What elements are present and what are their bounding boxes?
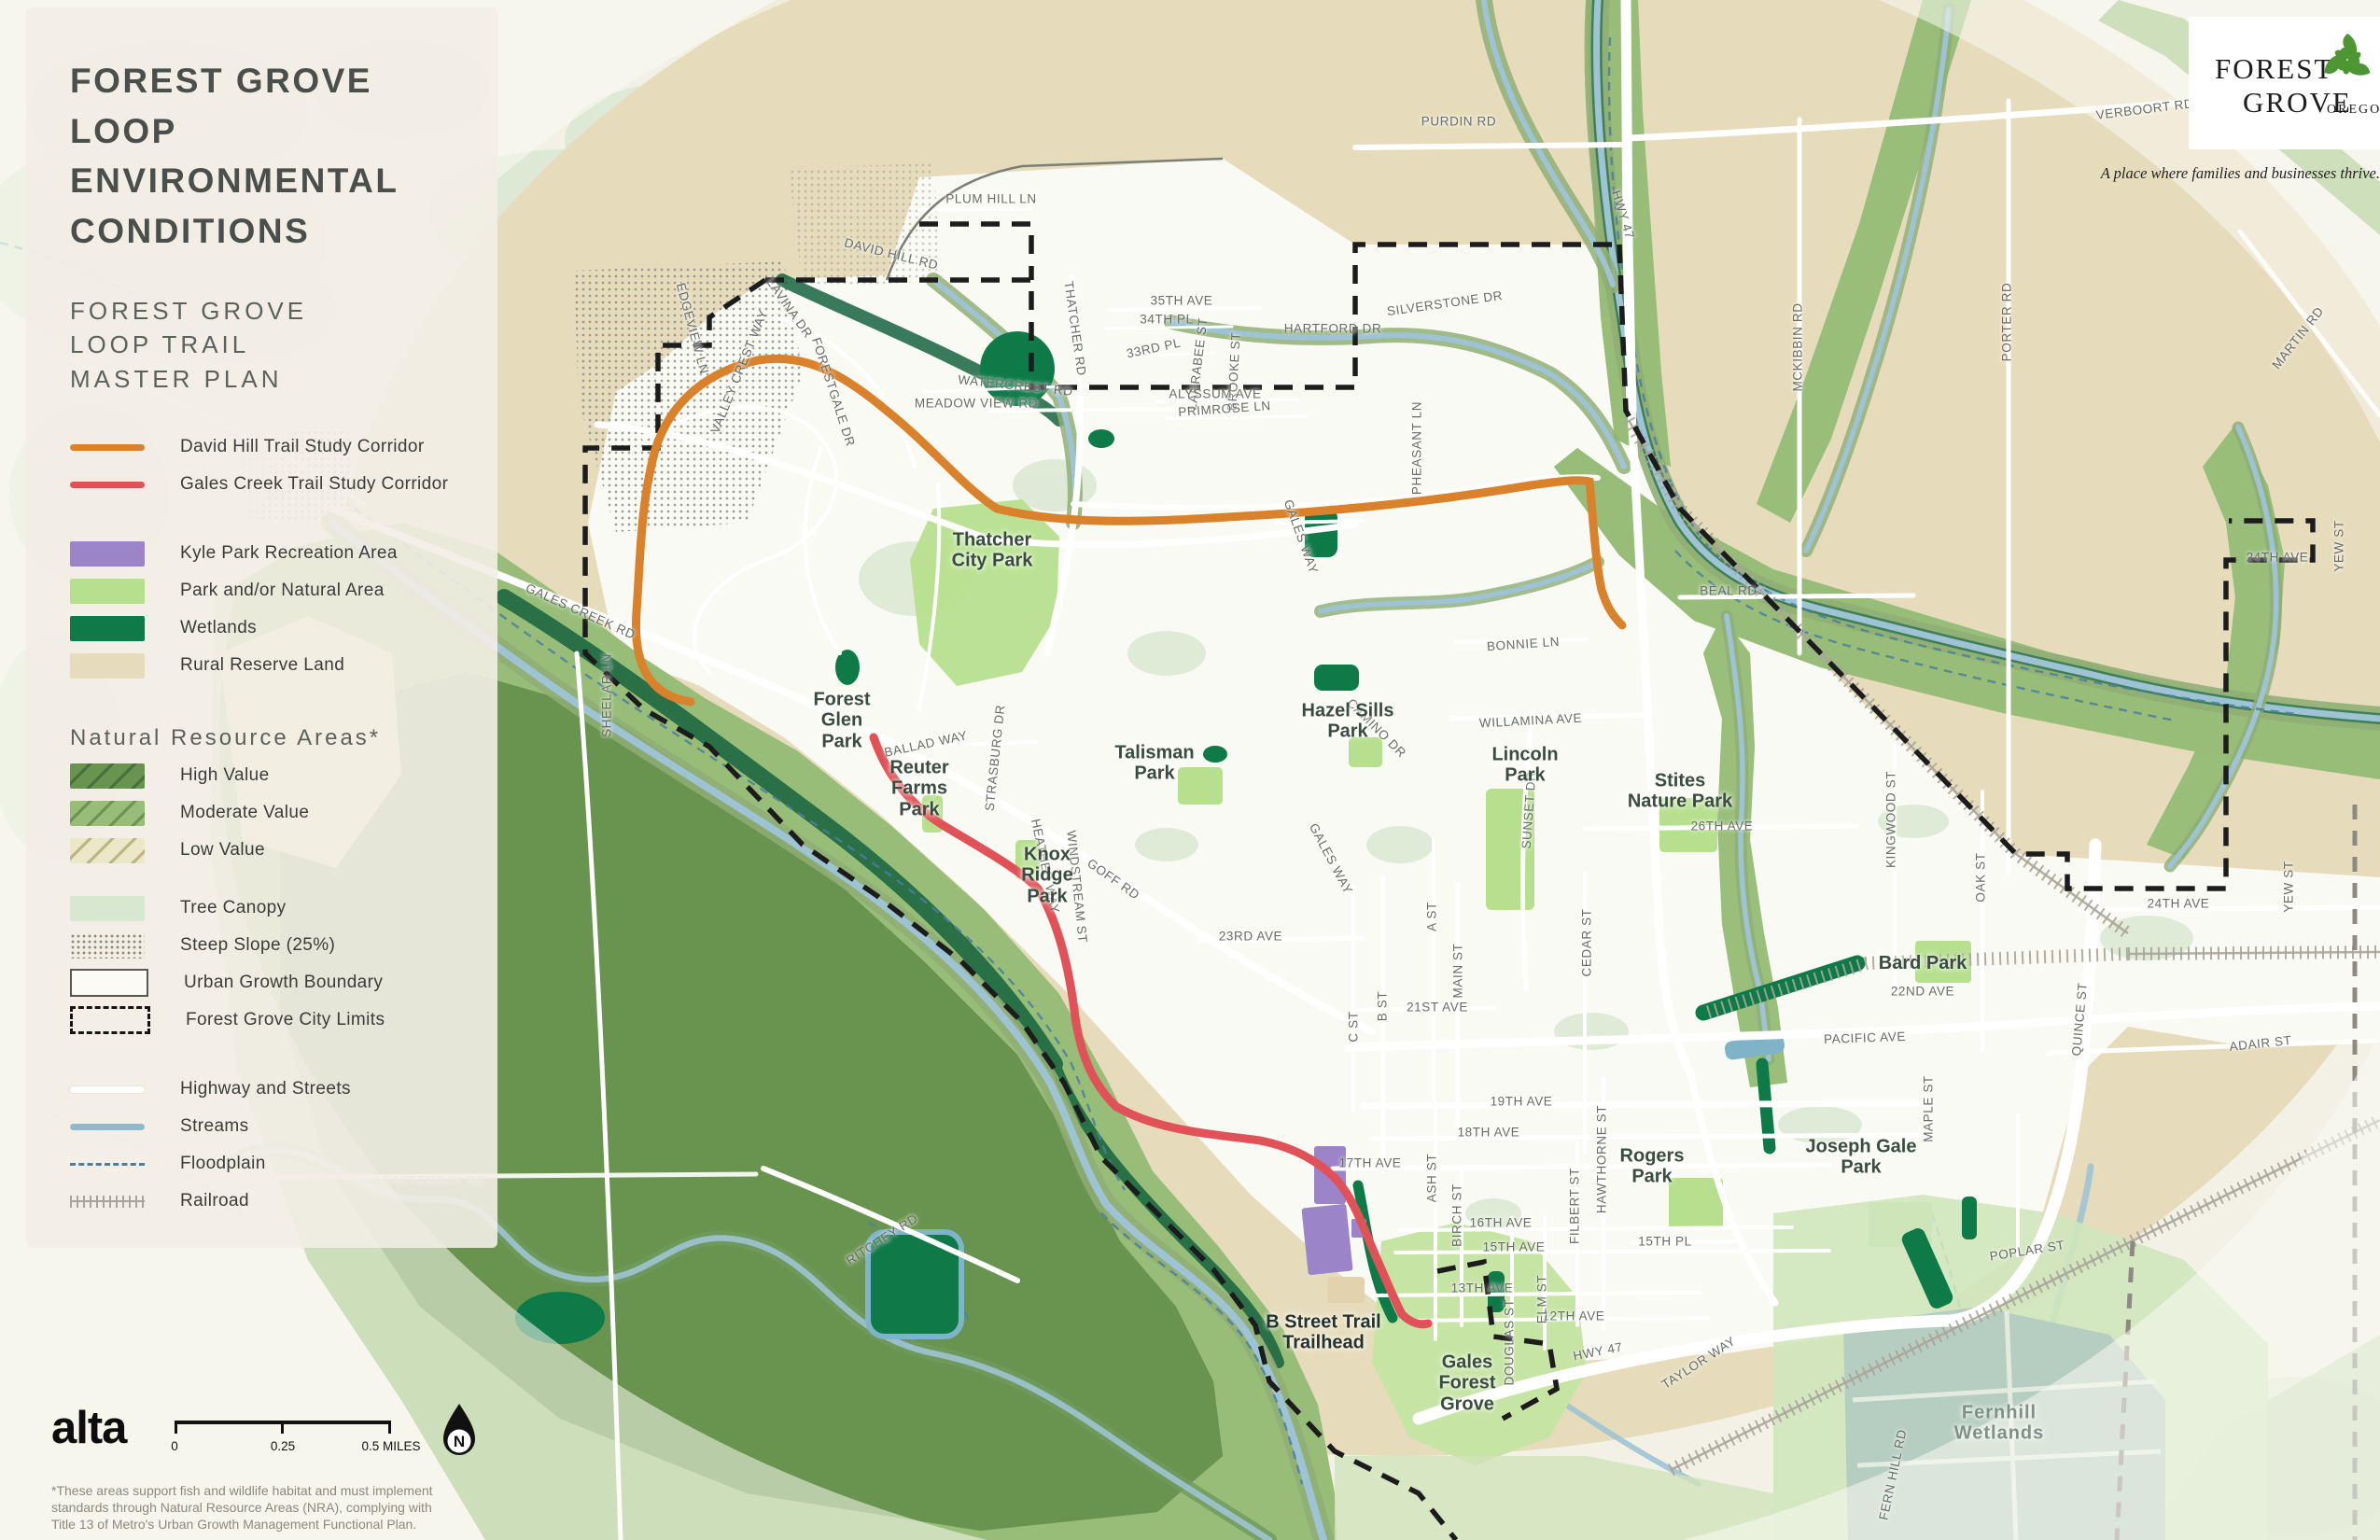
alta-logo: alta: [51, 1402, 126, 1454]
legend-swatch: [70, 933, 145, 959]
legend-area-items: Kyle Park Recreation AreaPark and/or Nat…: [70, 535, 469, 684]
legend-item: Forest Grove City Limits: [70, 1001, 469, 1039]
legend-item-label: Park and/or Natural Area: [180, 581, 385, 601]
legend-item: Tree Canopy: [70, 889, 469, 927]
scale-label-start: 0: [171, 1439, 178, 1453]
legend-swatch: [70, 444, 145, 451]
legend-item-label: Tree Canopy: [180, 898, 287, 918]
map-screenshot: PURDIN RDVERBOORT RDHWY 47MCKIBBIN RDPOR…: [0, 0, 2380, 1540]
legend-swatch: [70, 579, 145, 604]
logo-tagline: A place where families and businesses th…: [2072, 164, 2380, 183]
legend-item-label: Low Value: [180, 840, 265, 861]
nra-section-header: Natural Resource Areas*: [70, 725, 469, 751]
scale-bar: 0 0.25 0.5 MILES: [175, 1415, 391, 1452]
legend-swatch: [70, 763, 145, 789]
map-subtitle: FOREST GROVE LOOP TRAIL MASTER PLAN: [70, 294, 469, 398]
legend-item: Park and/or Natural Area: [70, 572, 469, 609]
legend-item: High Value: [70, 757, 469, 794]
legend-item-label: Railroad: [180, 1191, 249, 1211]
legend-item-label: Moderate Value: [180, 803, 309, 823]
legend-item-label: Gales Creek Trail Study Corridor: [180, 474, 448, 495]
legend-swatch: [70, 541, 145, 567]
logo-city-name-line1: FOREST: [2215, 52, 2333, 86]
legend-item-label: Forest Grove City Limits: [186, 1010, 385, 1030]
legend-item: Streams: [70, 1108, 469, 1145]
legend-item: Rural Reserve Land: [70, 647, 469, 684]
legend-item: Wetlands: [70, 609, 469, 647]
legend-nra-items: High ValueModerate ValueLow ValueTree Ca…: [70, 757, 469, 1039]
legend-item-label: Streams: [180, 1116, 249, 1137]
oak-leaves-icon: [2317, 30, 2377, 90]
legend-item: Steep Slope (25%): [70, 927, 469, 964]
legend-swatch: [70, 616, 145, 641]
legend-item-label: Urban Growth Boundary: [184, 973, 383, 993]
legend-swatch: [70, 1196, 145, 1208]
legend-swatch: [70, 1006, 150, 1034]
legend-item-label: High Value: [180, 765, 270, 786]
legend-item-label: Floodplain: [180, 1154, 266, 1174]
legend-swatch: [70, 896, 145, 921]
legend-swatch: [70, 1163, 145, 1166]
legend-swatch: [70, 1086, 145, 1093]
legend-item: David Hill Trail Study Corridor: [70, 428, 469, 466]
legend-swatch: [70, 653, 145, 679]
legend-item: Railroad: [70, 1183, 469, 1220]
legend-item: Floodplain: [70, 1145, 469, 1183]
legend-item: Highway and Streets: [70, 1071, 469, 1108]
legend-swatch: [70, 1124, 145, 1130]
legend-swatch: [70, 482, 145, 488]
legend-swatch: [70, 969, 148, 997]
legend-item: Low Value: [70, 832, 469, 869]
forest-grove-logo: FOREST GROVE OREGON: [2189, 17, 2380, 149]
legend-item: Gales Creek Trail Study Corridor: [70, 466, 469, 503]
legend-item: Urban Growth Boundary: [70, 964, 469, 1001]
trailhead-parcel: [1327, 1277, 1365, 1303]
legend-item-label: Kyle Park Recreation Area: [180, 543, 398, 564]
legend-infra-items: Highway and StreetsStreamsFloodplainRail…: [70, 1071, 469, 1220]
logo-state-name: OREGON: [2327, 103, 2380, 118]
legend-item: Moderate Value: [70, 794, 469, 832]
legend-item-label: David Hill Trail Study Corridor: [180, 437, 425, 457]
north-arrow-icon: N: [432, 1402, 486, 1463]
page-title: FOREST GROVE LOOPENVIRONMENTAL CONDITION…: [70, 56, 469, 257]
legend-item-label: Wetlands: [180, 618, 257, 638]
legend-swatch: [70, 838, 145, 863]
map-footnote: *These areas support fish and wildlife h…: [51, 1482, 433, 1533]
legend-trail-items: David Hill Trail Study CorridorGales Cre…: [70, 428, 469, 503]
legend-swatch: [70, 801, 145, 826]
scale-label-end: 0.5 MILES: [361, 1439, 420, 1453]
north-letter: N: [454, 1433, 465, 1450]
legend-item-label: Steep Slope (25%): [180, 935, 335, 956]
legend-item-label: Rural Reserve Land: [180, 655, 344, 676]
legend-item: Kyle Park Recreation Area: [70, 535, 469, 572]
legend-panel: FOREST GROVE LOOPENVIRONMENTAL CONDITION…: [26, 7, 497, 1248]
legend-item-label: Highway and Streets: [180, 1079, 351, 1099]
scale-label-mid: 0.25: [271, 1439, 295, 1453]
